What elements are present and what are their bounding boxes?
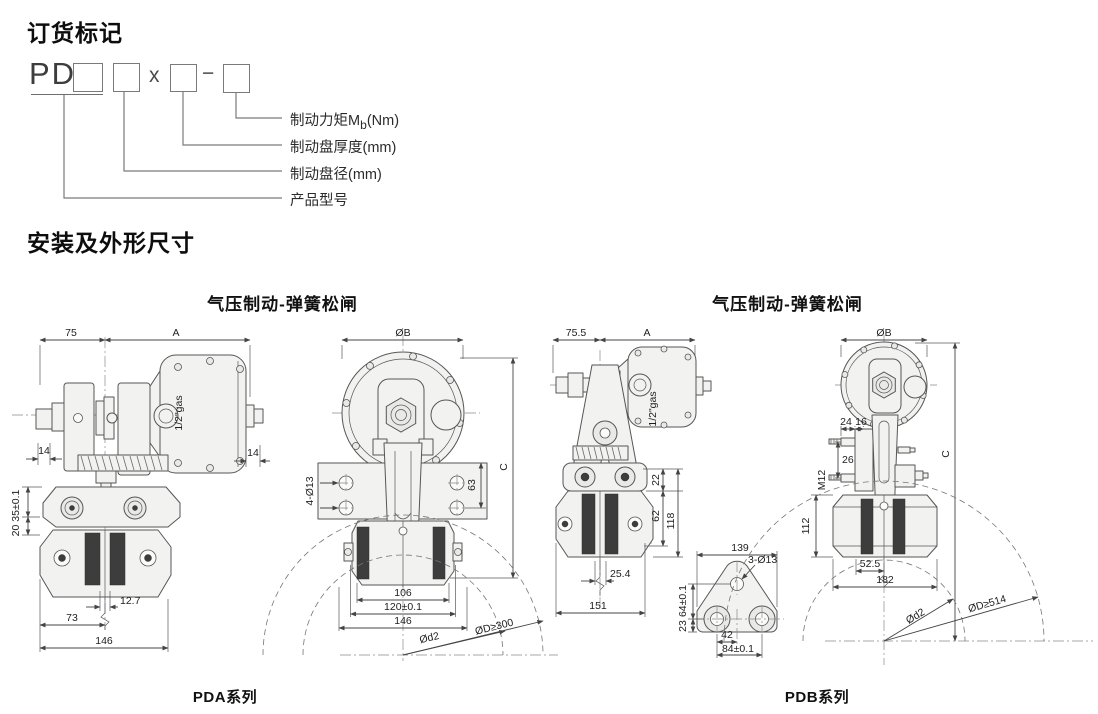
pdb-caption: 气压制动-弹簧松闸 — [665, 290, 910, 315]
pdb-dim-A: A — [643, 327, 650, 339]
pda-side-drawing: 75 A 1/2"gas — [8, 325, 270, 670]
callout-brake-torque-sub: b — [360, 118, 367, 132]
pdb-dim-d2: Ød2 — [904, 606, 927, 627]
pda-dim-D300: ØD≥300 — [474, 617, 515, 638]
pda-dim-4xO13: 4-Ø13 — [304, 476, 316, 505]
pdb-dim-64: 64±0.1 — [677, 585, 689, 617]
pda-dim-12-7: 12.7 — [120, 595, 141, 607]
pda-dim-73: 73 — [66, 612, 78, 624]
pdb-dim-62: 62 — [650, 510, 662, 522]
pda-brake-pad-right — [110, 533, 125, 585]
pda-dim-146-side: 146 — [95, 635, 113, 647]
pda-dim-120: 120±0.1 — [384, 601, 422, 613]
pda-dim-20-35: 20 35±0.1 — [10, 490, 22, 537]
pdb-dim-25-4: 25.4 — [610, 568, 631, 580]
callout-brake-torque-tail: (Nm) — [367, 113, 399, 129]
callout-disc-thickness: 制动盘厚度(mm) — [290, 136, 396, 157]
pdb-dim-118: 118 — [665, 512, 677, 529]
pdb-dim-C: C — [940, 450, 952, 458]
order-code-multiply: x — [149, 64, 160, 88]
pdb-front-drawing: ØB C 24 16 26 M12 — [795, 325, 1098, 670]
order-callout-lines — [0, 90, 300, 210]
pda-dim-146-front: 146 — [394, 615, 412, 627]
pdb-dim-22: 22 — [650, 474, 662, 486]
order-code-box-3 — [170, 64, 197, 92]
pdb-dim-gas: 1/2"gas — [647, 391, 659, 426]
order-code-box-4 — [223, 64, 250, 93]
callout-product-model: 产品型号 — [290, 189, 348, 210]
callout-brake-torque: 制动力矩Mb(Nm) — [290, 109, 399, 132]
pdb-dim-112: 112 — [800, 517, 812, 534]
pdb-dim-M12: M12 — [816, 470, 828, 491]
pdb-dim-16: 16 — [855, 416, 867, 428]
pda-dim-106: 106 — [394, 587, 412, 599]
pdb-dim-OB: ØB — [876, 327, 891, 339]
pda-series-label: PDA系列 — [180, 686, 270, 707]
pda-rod — [36, 409, 52, 429]
pdb-rod — [556, 377, 568, 393]
callout-disc-diameter: 制动盘径(mm) — [290, 163, 382, 184]
pda-dim-gas: 1/2"gas — [173, 395, 185, 430]
pdb-dim-3xO13: 3-Ø13 — [748, 554, 777, 566]
callout-brake-torque-main: 制动力矩M — [290, 113, 360, 129]
order-code-dash: − — [202, 62, 214, 86]
pdb-dim-26: 26 — [842, 454, 854, 466]
pda-dim-75: 75 — [65, 327, 77, 339]
order-code-box-2 — [113, 63, 140, 92]
pdb-dim-42: 42 — [721, 629, 733, 641]
order-marking-title: 订货标记 — [27, 14, 123, 48]
pdb-dim-24: 24 — [840, 416, 852, 428]
pdb-adjuster — [895, 465, 915, 487]
order-code-box-1 — [73, 63, 103, 92]
order-code-prefix: PD — [29, 59, 76, 89]
pdb-dim-84: 84±0.1 — [722, 643, 754, 655]
pda-front-drawing: ØB 4-Ø13 63 C — [300, 325, 560, 670]
pda-dim-d2: Ød2 — [418, 630, 440, 646]
pda-dim-C: C — [498, 463, 510, 471]
pdb-brake-pad-left — [582, 494, 595, 554]
pda-dim-14-right: 14 — [247, 447, 259, 459]
pdb-series-label: PDB系列 — [772, 686, 862, 707]
pdb-brake-pad-right — [605, 494, 618, 554]
pda-dim-OB: ØB — [395, 327, 410, 339]
pdb-dim-139: 139 — [731, 542, 749, 554]
pda-dim-A: A — [172, 327, 179, 339]
pdb-mount-bracket — [855, 429, 873, 491]
pdb-dim-52-5: 52.5 — [860, 558, 881, 570]
pda-brake-pad-left — [85, 533, 100, 585]
pdb-side-drawing: 75.5 A 1/2"gas 22 — [548, 325, 790, 670]
pda-caption: 气压制动-弹簧松闸 — [160, 290, 405, 315]
pdb-dim-23: 23 — [677, 620, 689, 632]
installation-title: 安装及外形尺寸 — [27, 224, 195, 258]
pdb-dim-151: 151 — [589, 600, 607, 612]
catalog-page: 订货标记 PD x − 制动力矩Mb(Nm) 制动盘厚度(mm) 制动盘径(mm… — [0, 0, 1098, 714]
pda-dim-14-left: 14 — [38, 445, 50, 457]
pdb-dim-182: 182 — [876, 574, 894, 586]
pda-dim-63: 63 — [466, 479, 478, 491]
pdb-dim-75-5: 75.5 — [566, 327, 587, 339]
